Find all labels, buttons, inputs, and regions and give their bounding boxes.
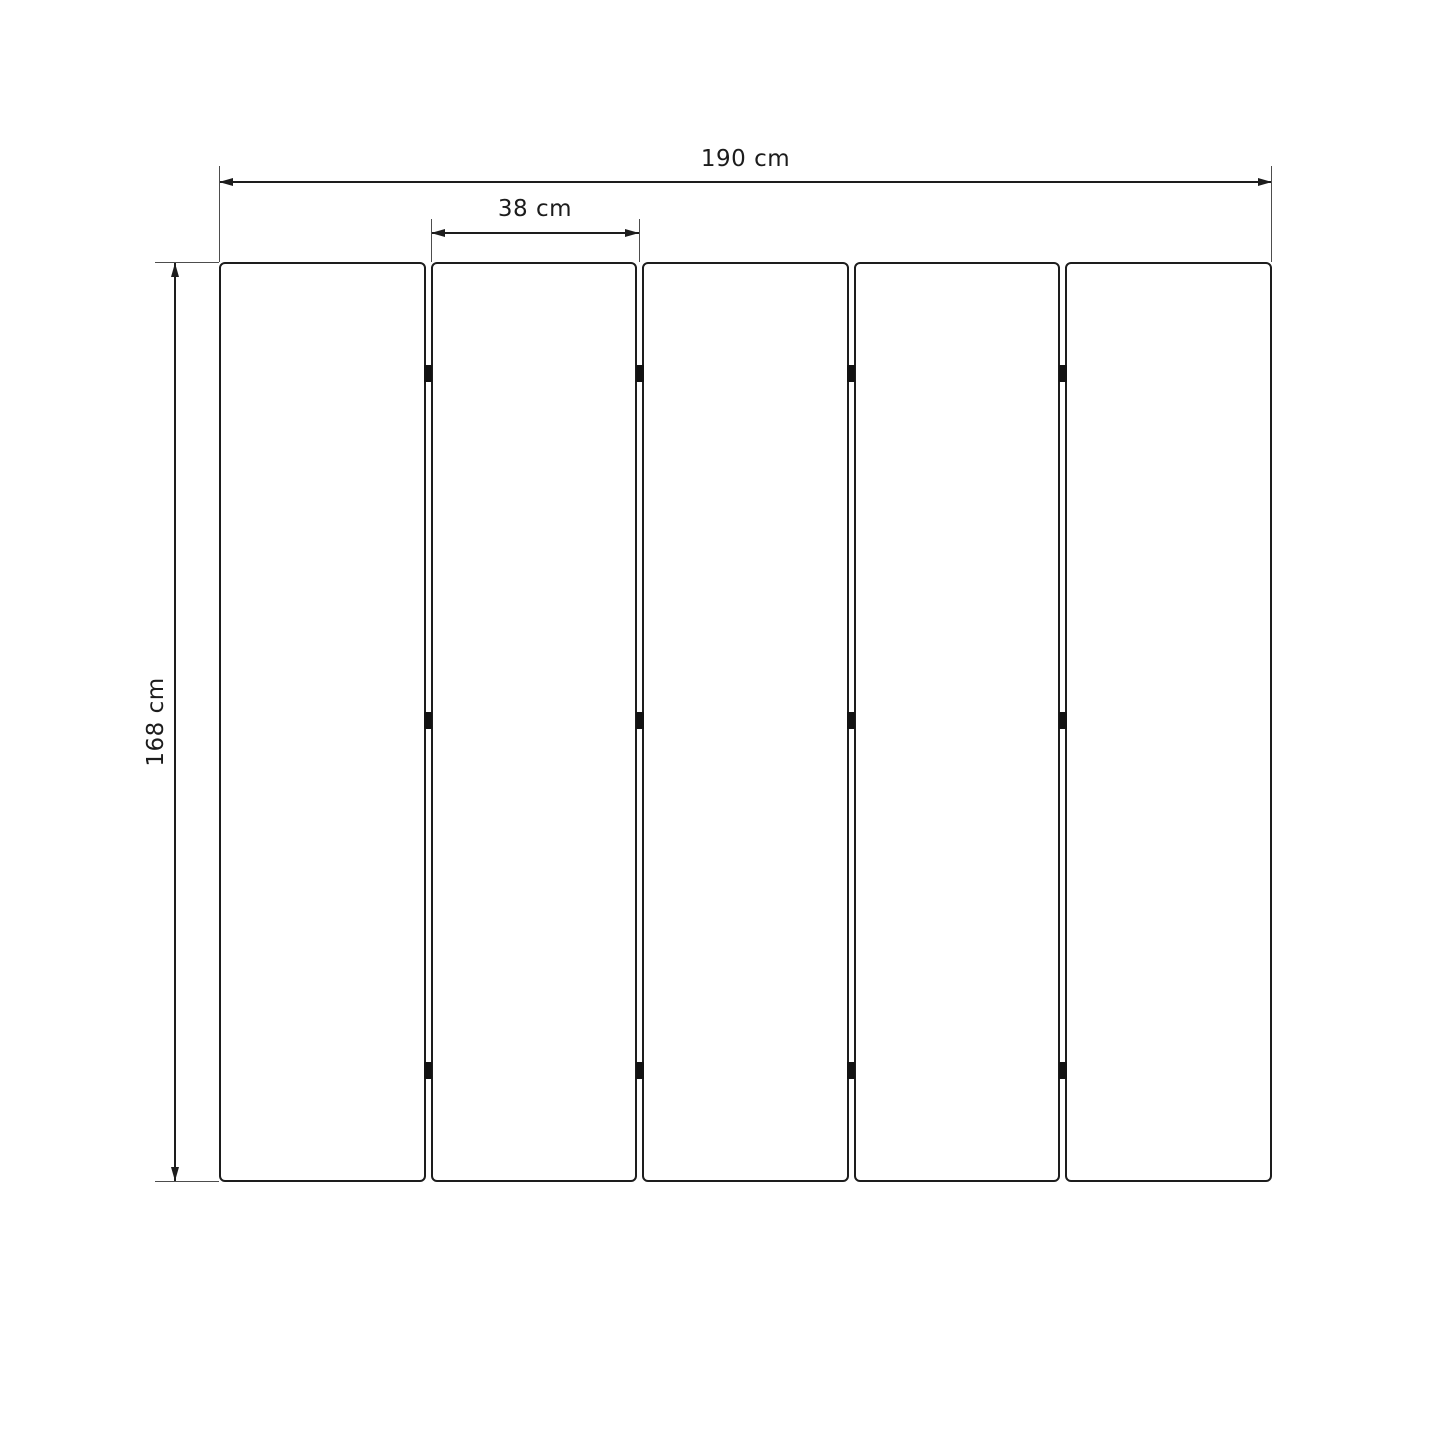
panel-2 [431, 262, 638, 1182]
panel-3 [642, 262, 849, 1182]
hinge-mark [847, 712, 855, 729]
hinge-mark [1059, 1062, 1067, 1079]
arrowhead-left-icon [431, 229, 445, 237]
hinge-mark [847, 1062, 855, 1079]
extension-line-right [1271, 166, 1272, 262]
arrowhead-right-icon [625, 229, 639, 237]
extension-line-left [219, 166, 220, 262]
arrowhead-right-icon [1258, 178, 1272, 186]
extension-line-left [431, 219, 432, 262]
hinge-mark [847, 365, 855, 382]
arrowhead-down-icon [171, 1167, 179, 1181]
total-width-dimension-line [219, 181, 1272, 183]
total-width-label: 190 cm [219, 146, 1272, 172]
height-dimension-line [174, 263, 176, 1181]
panel-width-label: 38 cm [431, 196, 639, 222]
hinge-mark [636, 1062, 644, 1079]
panel-4 [854, 262, 1061, 1182]
panel-dimension-diagram: 190 cm 38 cm 168 cm [0, 0, 1445, 1445]
folding-screen-panels [219, 262, 1272, 1182]
height-label: 168 cm [143, 677, 169, 766]
arrowhead-up-icon [171, 263, 179, 277]
hinge-mark [1059, 365, 1067, 382]
extension-line-top [155, 262, 219, 263]
arrowhead-left-icon [219, 178, 233, 186]
extension-line-right [639, 219, 640, 262]
hinge-mark [1059, 712, 1067, 729]
panel-5 [1065, 262, 1272, 1182]
hinge-mark [636, 365, 644, 382]
hinge-mark [424, 1062, 432, 1079]
hinge-mark [424, 365, 432, 382]
panel-1 [219, 262, 426, 1182]
hinge-mark [424, 712, 432, 729]
hinge-mark [636, 712, 644, 729]
panel-width-dimension-line [431, 232, 639, 234]
extension-line-bottom [155, 1181, 219, 1182]
